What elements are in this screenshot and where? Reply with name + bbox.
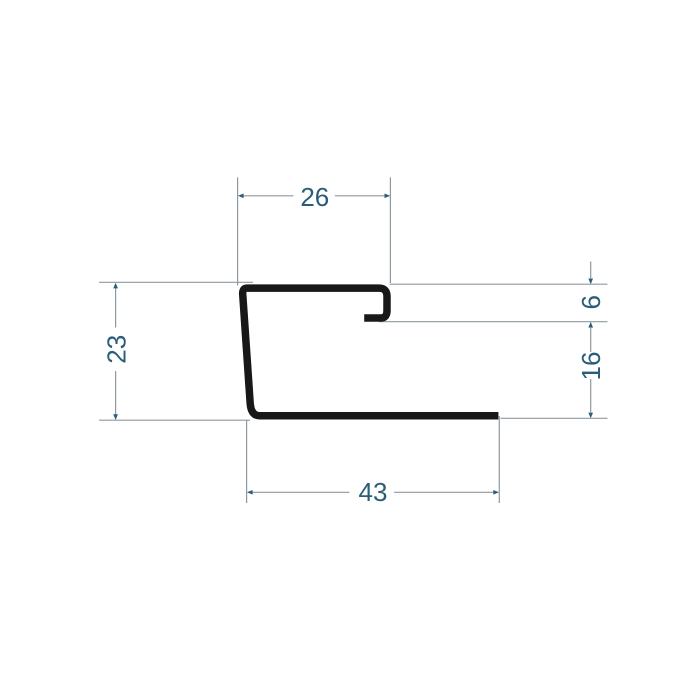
- svg-text:43: 43: [359, 477, 388, 507]
- svg-text:16: 16: [576, 352, 606, 381]
- svg-text:26: 26: [300, 182, 329, 212]
- svg-text:6: 6: [576, 295, 606, 309]
- svg-text:23: 23: [101, 335, 131, 364]
